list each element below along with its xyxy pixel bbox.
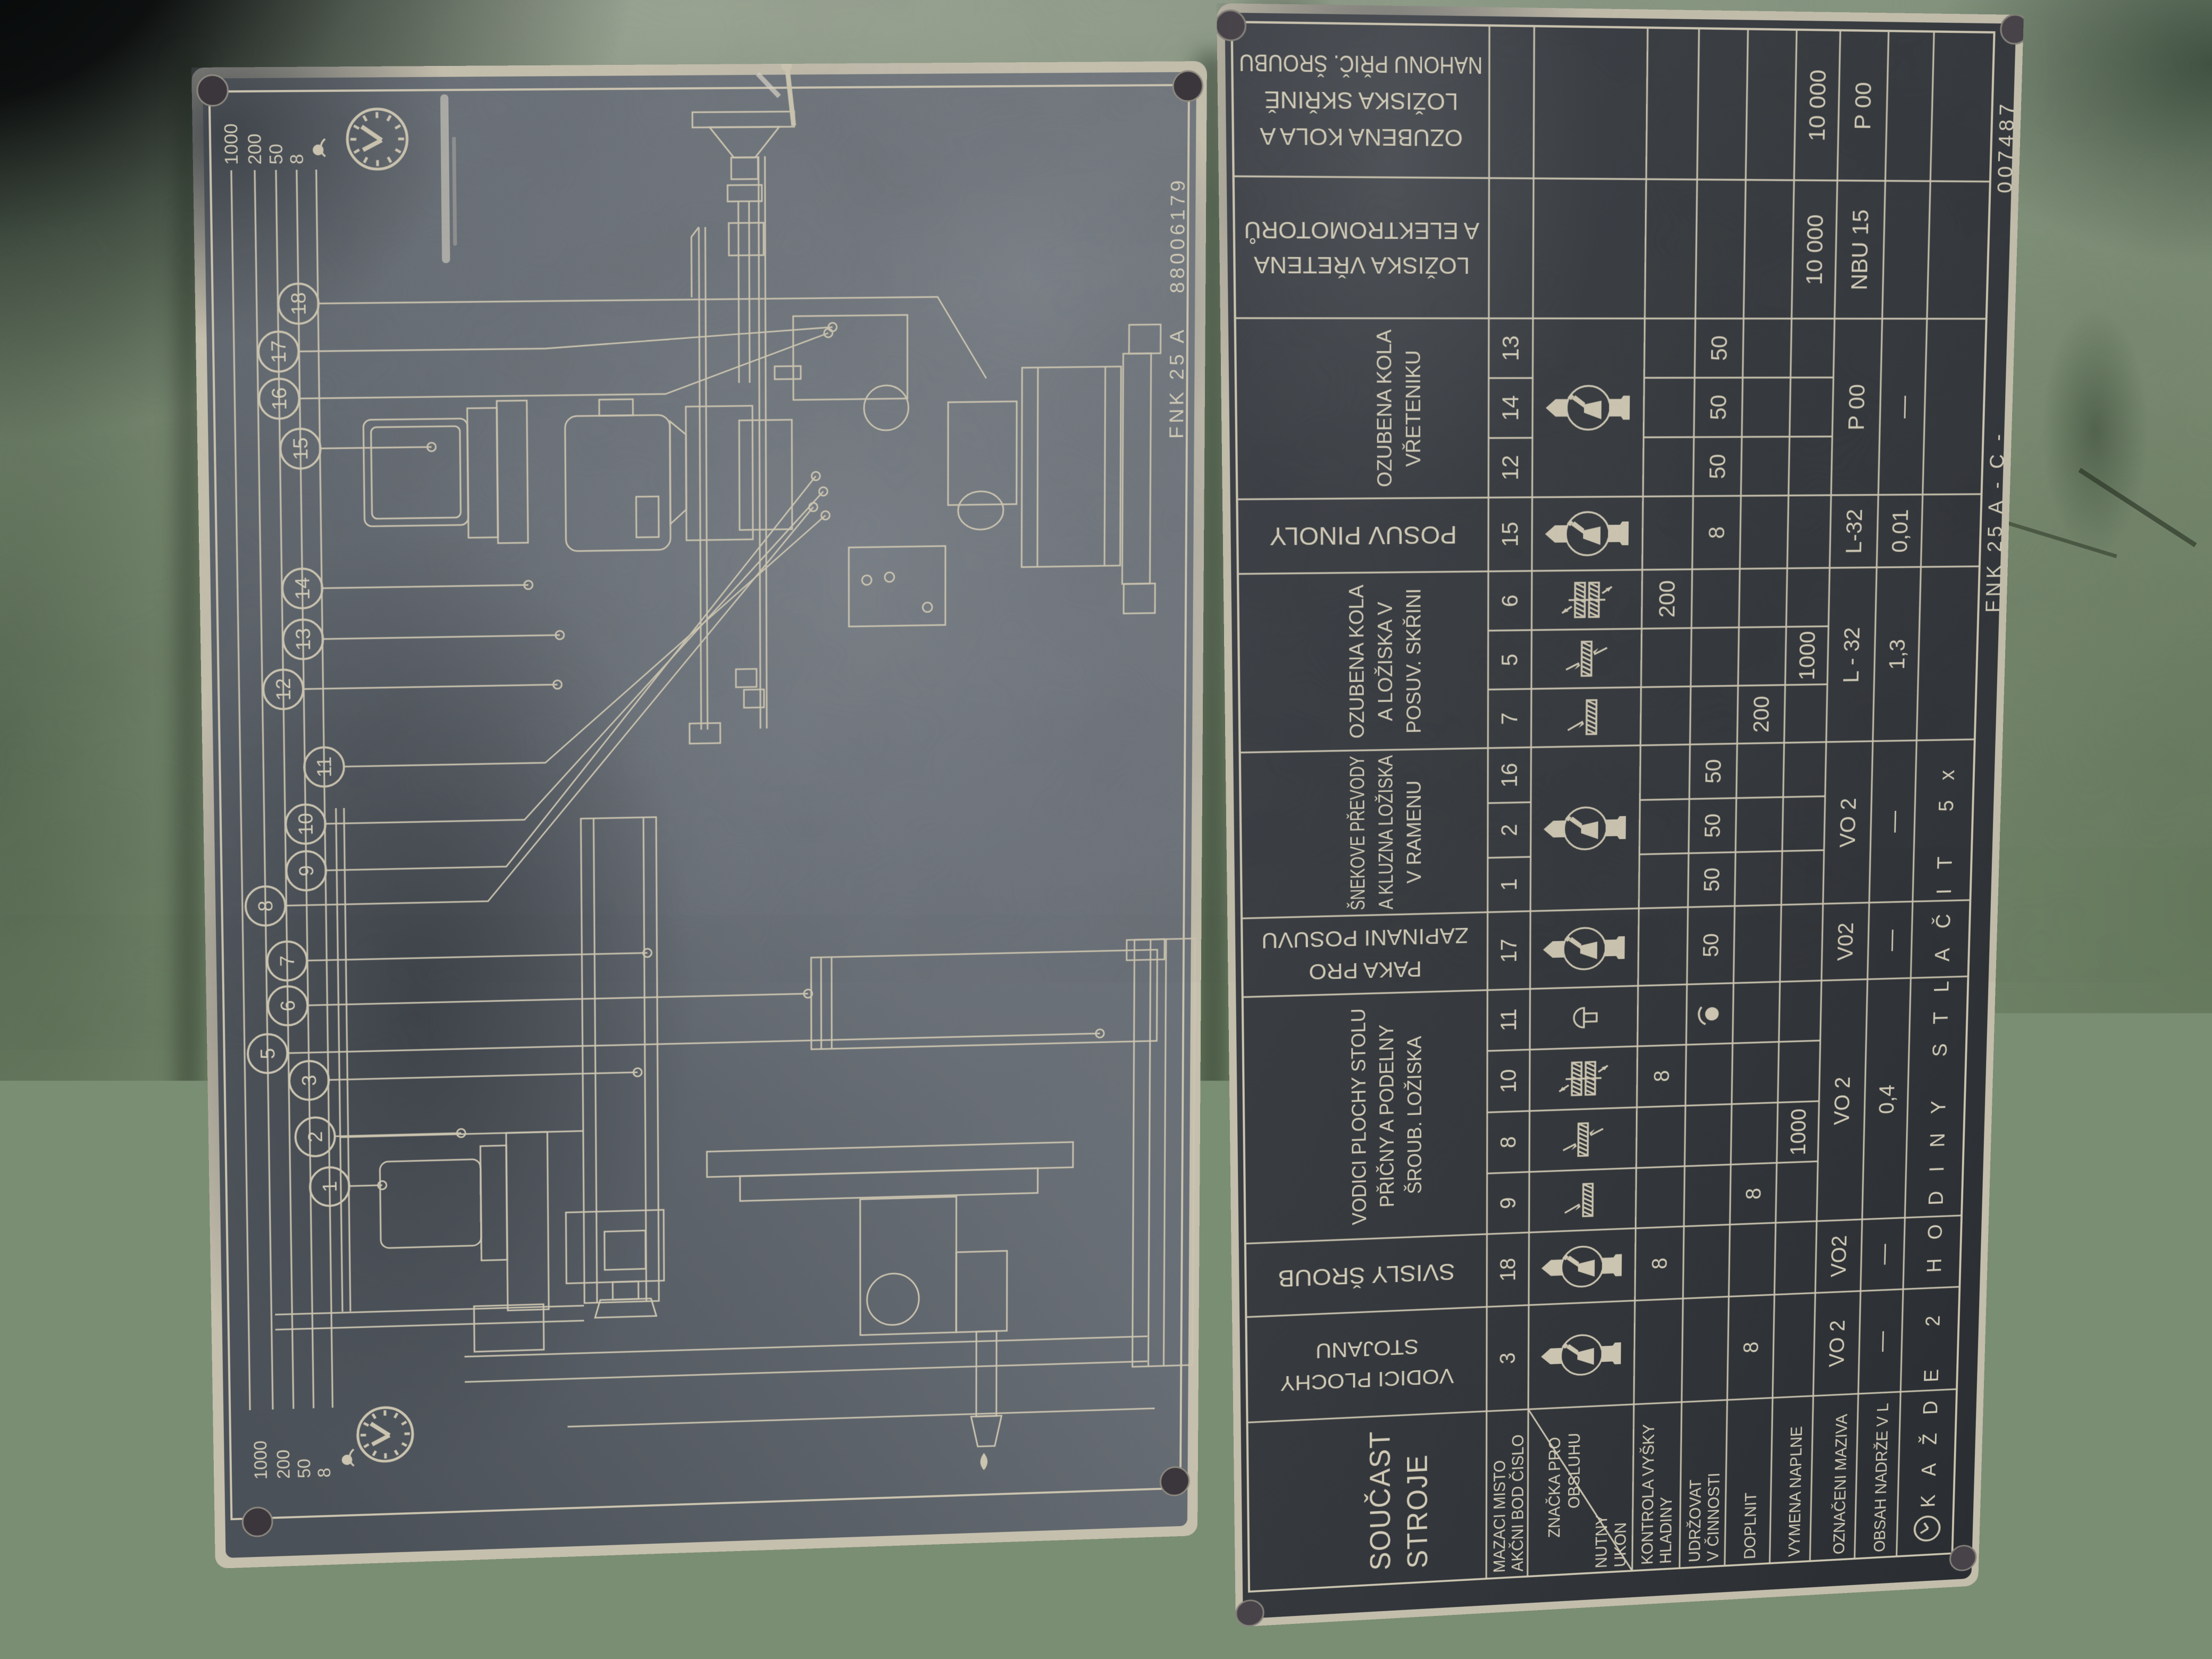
svg-text:VO 2: VO 2 xyxy=(1836,798,1861,848)
svg-text:50: 50 xyxy=(1702,759,1727,784)
svg-text:8: 8 xyxy=(287,154,307,164)
svg-text:V ČINNOSTI: V ČINNOSTI xyxy=(1703,1472,1723,1562)
svg-text:13: 13 xyxy=(292,628,315,651)
svg-text:P 00: P 00 xyxy=(1850,82,1877,130)
svg-text:V02: V02 xyxy=(1833,922,1858,961)
svg-text:14: 14 xyxy=(1498,395,1524,421)
svg-text:12: 12 xyxy=(272,678,295,701)
svg-text:V RAMENU: V RAMENU xyxy=(1403,780,1426,884)
svg-text:L - 32: L - 32 xyxy=(1839,627,1865,683)
svg-text:1000: 1000 xyxy=(221,123,242,165)
svg-text:—: — xyxy=(1890,395,1916,418)
svg-text:NAHONU PŘIČ. ŠROUBU: NAHONU PŘIČ. ŠROUBU xyxy=(1239,48,1482,78)
svg-text:11: 11 xyxy=(313,756,336,777)
svg-text:50: 50 xyxy=(1700,867,1725,892)
svg-text:STOJANU: STOJANU xyxy=(1316,1335,1419,1363)
svg-text:18: 18 xyxy=(1496,1258,1520,1282)
svg-text:8: 8 xyxy=(1739,1341,1763,1354)
svg-text:VŘETENIKU: VŘETENIKU xyxy=(1402,350,1425,467)
svg-text:3: 3 xyxy=(1496,1352,1520,1364)
svg-text:OZUBENA KOLA: OZUBENA KOLA xyxy=(1373,329,1396,488)
svg-text:P 00: P 00 xyxy=(1845,384,1871,430)
svg-text:7: 7 xyxy=(1497,712,1523,725)
svg-text:50: 50 xyxy=(1699,933,1724,957)
svg-text:OBSAH NADRŽE V L: OBSAH NADRŽE V L xyxy=(1870,1403,1892,1553)
svg-text:200: 200 xyxy=(1655,580,1680,618)
svg-text:5: 5 xyxy=(1497,653,1523,666)
svg-text:1000: 1000 xyxy=(1795,631,1820,680)
svg-text:A LOŽISKA V: A LOŽISKA V xyxy=(1373,601,1397,722)
svg-text:NUTNY: NUTNY xyxy=(1591,1514,1611,1569)
svg-text:8: 8 xyxy=(1648,1257,1672,1270)
svg-text:17: 17 xyxy=(1496,938,1521,963)
svg-text:1000: 1000 xyxy=(1786,1108,1811,1156)
svg-text:16: 16 xyxy=(268,387,291,410)
svg-text:15: 15 xyxy=(289,437,313,460)
svg-text:LOŽISKA VŘETENA: LOŽISKA VŘETENA xyxy=(1254,251,1470,278)
svg-text:—: — xyxy=(1879,929,1903,951)
svg-text:200: 200 xyxy=(273,1449,294,1479)
svg-text:OBSLUHU: OBSLUHU xyxy=(1564,1432,1583,1509)
svg-text:50: 50 xyxy=(1705,454,1731,479)
svg-text:ZNAČKA PRO: ZNAČKA PRO xyxy=(1545,1437,1564,1538)
svg-text:200: 200 xyxy=(1749,696,1775,733)
svg-text:88006179: 88006179 xyxy=(1166,177,1189,294)
svg-text:50: 50 xyxy=(266,144,287,164)
svg-text:2: 2 xyxy=(304,1131,327,1143)
svg-text:8: 8 xyxy=(1705,526,1730,539)
svg-text:VO2: VO2 xyxy=(1827,1235,1852,1277)
svg-text:1: 1 xyxy=(1497,878,1522,891)
svg-text:7: 7 xyxy=(276,955,299,967)
svg-text:—: — xyxy=(1869,1330,1893,1352)
svg-text:0,01: 0,01 xyxy=(1888,509,1913,552)
svg-text:FNK 25 A: FNK 25 A xyxy=(1166,326,1188,439)
svg-text:8: 8 xyxy=(314,1468,334,1478)
svg-text:VODICI PLOCHY STOLU: VODICI PLOCHY STOLU xyxy=(1348,1008,1371,1226)
svg-text:2: 2 xyxy=(1497,824,1522,836)
svg-text:0,4: 0,4 xyxy=(1875,1084,1899,1115)
svg-text:L-32: L-32 xyxy=(1842,509,1867,554)
svg-text:POSUV. SKŘINI: POSUV. SKŘINI xyxy=(1402,588,1426,733)
svg-text:5: 5 xyxy=(256,1048,279,1060)
svg-text:14: 14 xyxy=(291,577,314,600)
svg-text:1000: 1000 xyxy=(250,1440,271,1480)
svg-text:KONTROLA VYŠKY: KONTROLA VYŠKY xyxy=(1638,1423,1658,1565)
svg-text:DOPLNIT: DOPLNIT xyxy=(1740,1492,1759,1560)
svg-text:HLADINY: HLADINY xyxy=(1656,1496,1675,1564)
svg-text:A KLUZNA LOŽISKA: A KLUZNA LOŽISKA xyxy=(1375,755,1398,910)
svg-text:OZNAČENI MAZIVA: OZNAČENI MAZIVA xyxy=(1830,1413,1851,1555)
svg-text:16: 16 xyxy=(1497,763,1522,787)
svg-text:OZUBENA KOLA A: OZUBENA KOLA A xyxy=(1260,122,1463,150)
svg-text:9: 9 xyxy=(295,865,318,877)
svg-text:3: 3 xyxy=(298,1075,321,1086)
svg-text:POSUV PINOLY: POSUV PINOLY xyxy=(1269,521,1457,550)
svg-text:AKČNI BOD ČISLO: AKČNI BOD ČISLO xyxy=(1508,1434,1527,1572)
svg-text:1: 1 xyxy=(319,1181,341,1193)
svg-text:10: 10 xyxy=(294,812,317,835)
svg-text:13: 13 xyxy=(1498,336,1524,362)
svg-text:18: 18 xyxy=(287,292,311,315)
svg-text:UKON: UKON xyxy=(1611,1522,1630,1568)
svg-text:17: 17 xyxy=(267,340,290,364)
svg-text:8: 8 xyxy=(254,900,277,912)
svg-text:PAKA PRO: PAKA PRO xyxy=(1309,957,1422,984)
svg-text:LOŽISKA SKŘINĚ: LOŽISKA SKŘINĚ xyxy=(1264,86,1458,114)
svg-text:10 000: 10 000 xyxy=(1805,69,1831,141)
svg-text:1,3: 1,3 xyxy=(1885,639,1911,669)
svg-text:VO 2: VO 2 xyxy=(1825,1320,1850,1368)
svg-text:PŘIČNY A PODELNY: PŘIČNY A PODELNY xyxy=(1375,1024,1398,1208)
svg-text:OZUBENA KOLA: OZUBENA KOLA xyxy=(1345,584,1369,739)
svg-text:50: 50 xyxy=(1706,395,1732,420)
svg-text:NBU 15: NBU 15 xyxy=(1847,210,1874,290)
svg-text:SOUČAST: SOUČAST xyxy=(1363,1429,1397,1571)
svg-text:VO 2: VO 2 xyxy=(1830,1076,1855,1125)
svg-text:50: 50 xyxy=(1707,336,1732,361)
svg-text:10 000: 10 000 xyxy=(1802,214,1829,285)
svg-text:50: 50 xyxy=(294,1459,314,1479)
svg-text:6: 6 xyxy=(276,1000,299,1012)
svg-text:007487: 007487 xyxy=(1994,100,2019,194)
svg-text:ŠNEKOVE PŘEVODY: ŠNEKOVE PŘEVODY xyxy=(1345,756,1369,910)
svg-text:8: 8 xyxy=(1496,1136,1521,1149)
svg-text:9: 9 xyxy=(1496,1196,1520,1209)
svg-text:ŠROUB. LOŽISKA: ŠROUB. LOŽISKA xyxy=(1403,1035,1426,1194)
svg-text:10: 10 xyxy=(1496,1069,1521,1093)
svg-text:15: 15 xyxy=(1497,522,1523,547)
svg-text:—: — xyxy=(1871,1243,1896,1266)
svg-text:11: 11 xyxy=(1496,1008,1521,1032)
svg-text:8: 8 xyxy=(1742,1187,1766,1200)
svg-text:50: 50 xyxy=(1700,813,1725,838)
svg-text:UDRŽOVAT: UDRŽOVAT xyxy=(1685,1479,1705,1562)
svg-text:12: 12 xyxy=(1498,455,1523,480)
svg-text:A ELEKTROMOTORŮ: A ELEKTROMOTORŮ xyxy=(1244,216,1479,245)
svg-text:MAZACI MISTO: MAZACI MISTO xyxy=(1490,1460,1509,1573)
svg-text:—: — xyxy=(1881,810,1906,833)
svg-text:VYMENA NAPLNE: VYMENA NAPLNE xyxy=(1784,1426,1805,1557)
svg-text:STROJE: STROJE xyxy=(1401,1453,1434,1569)
svg-text:8: 8 xyxy=(1650,1070,1674,1083)
svg-text:6: 6 xyxy=(1497,594,1523,607)
svg-text:200: 200 xyxy=(245,133,266,165)
